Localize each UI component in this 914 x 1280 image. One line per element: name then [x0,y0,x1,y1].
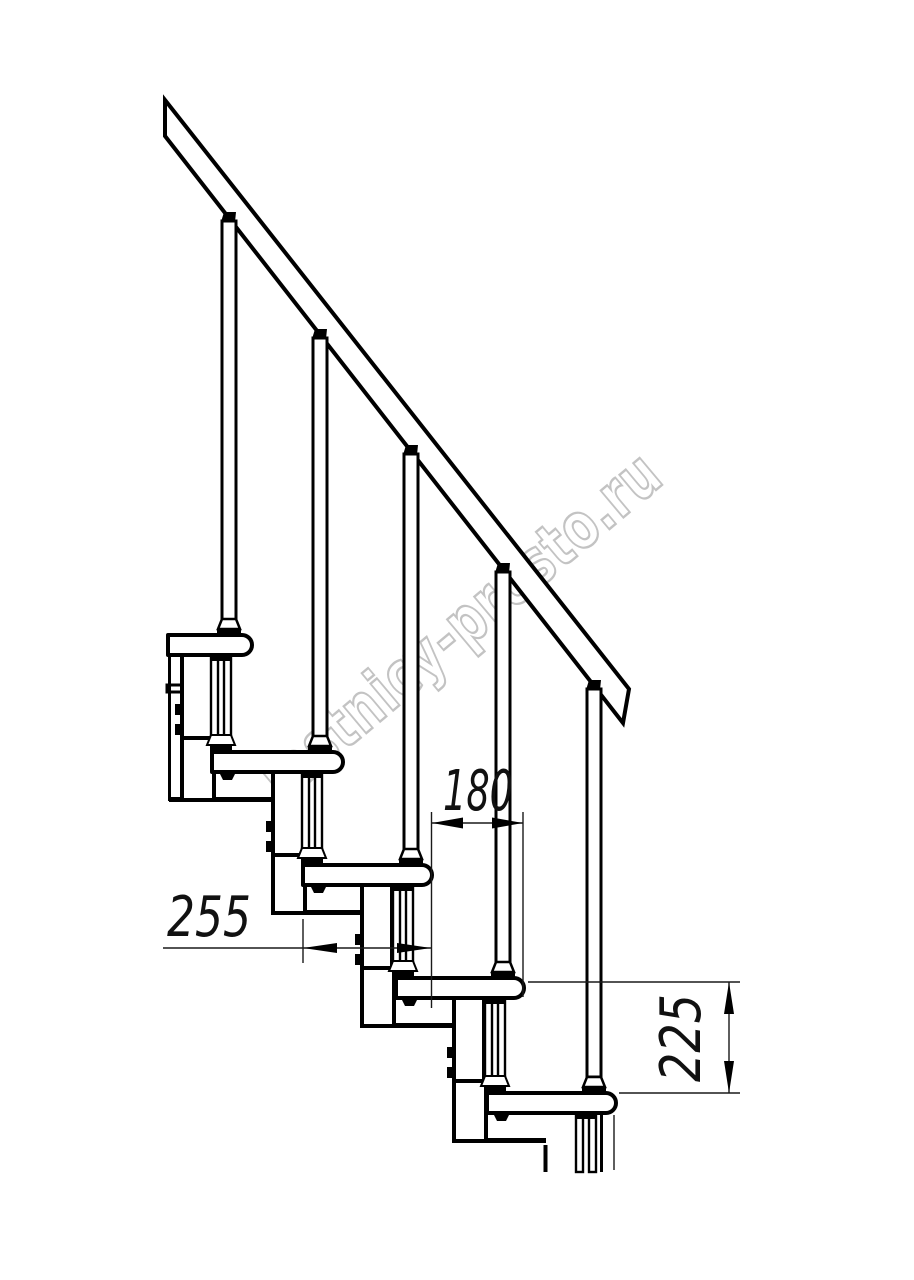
staircase-drawing-canvas: lestnicy-prosto.ru [0,0,914,1280]
arrow-up-icon [724,982,734,1014]
baluster-3-rod-base [392,971,414,978]
baluster-3-rod-collar-top [392,885,413,891]
support-column-3-upper [362,885,392,968]
baluster-4-rod-base [484,1086,506,1093]
baluster-1-rod-base [210,745,232,752]
bolt-icon [355,934,362,945]
baluster-2-rod-base [301,858,323,865]
tread-3 [303,865,432,885]
baluster-4-rod-collar-top [484,998,505,1004]
tread-2 [212,752,343,772]
support-column-1-lower [182,738,214,800]
baluster-4-rods [481,999,509,1086]
bolt-icon [447,1067,454,1078]
tread-4 [396,978,524,998]
bolt-icon [266,841,273,852]
support-column-4-upper [454,998,484,1081]
dimension-going-label: 180 [443,759,513,824]
baluster-2-rod-collar-top [301,772,322,778]
baluster-3 [399,445,423,865]
dimension-tread-depth-label: 255 [167,885,251,950]
tread-1 [168,635,252,655]
tread-5 [487,1093,616,1113]
baluster-5 [582,680,606,1093]
support-column-2-upper [273,772,303,855]
support-column-4-lower [454,1081,486,1141]
staircase-side-view: lestnicy-prosto.ru [0,0,914,1280]
arrow-left-icon [303,943,337,953]
nut-icon [493,1113,510,1121]
dimension-rise-label: 225 [649,994,714,1082]
bolt-icon [266,821,273,832]
bolt-icon [175,704,182,715]
baluster-5-rods [576,1114,596,1172]
bolt-icon [175,724,182,735]
bolt-icon [355,954,362,965]
support-column-2-lower [273,855,305,913]
baluster-1-rods [207,656,235,745]
baluster-1 [217,212,241,635]
dimensions: 180 255 225 [163,759,740,1170]
nut-icon [310,885,327,893]
dimension-rise: 225 [528,982,740,1170]
nut-icon [219,772,236,780]
baluster-5-rod-collar-top [575,1113,596,1119]
support-column-1-upper [182,655,212,738]
baluster-1-rod-collar-top [210,655,231,661]
support-column-3-lower [362,968,394,1026]
baluster-3-rods [389,886,417,971]
arrow-down-icon [724,1061,734,1093]
nut-icon [401,998,418,1006]
bolt-icon [447,1047,454,1058]
baluster-2 [308,329,332,752]
